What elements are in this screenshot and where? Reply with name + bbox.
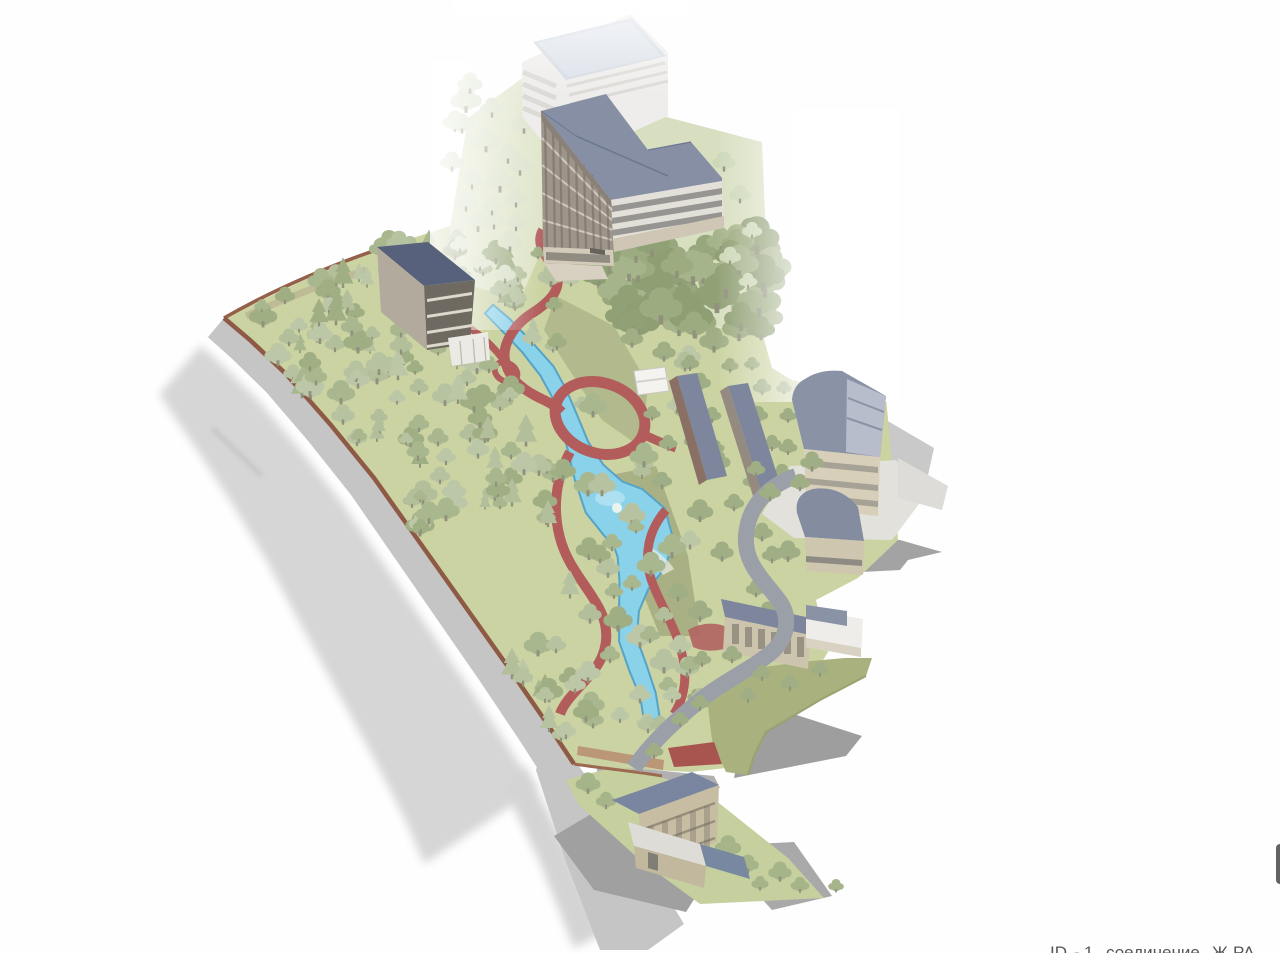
svg-text:РА: РА — [1233, 943, 1255, 953]
svg-text:Ж: Ж — [1212, 943, 1228, 953]
svg-text:1: 1 — [1084, 943, 1093, 953]
svg-text:ID: ID — [1050, 943, 1067, 953]
svg-text:соединение: соединение — [1106, 943, 1200, 953]
svg-text:-: - — [1074, 943, 1080, 953]
